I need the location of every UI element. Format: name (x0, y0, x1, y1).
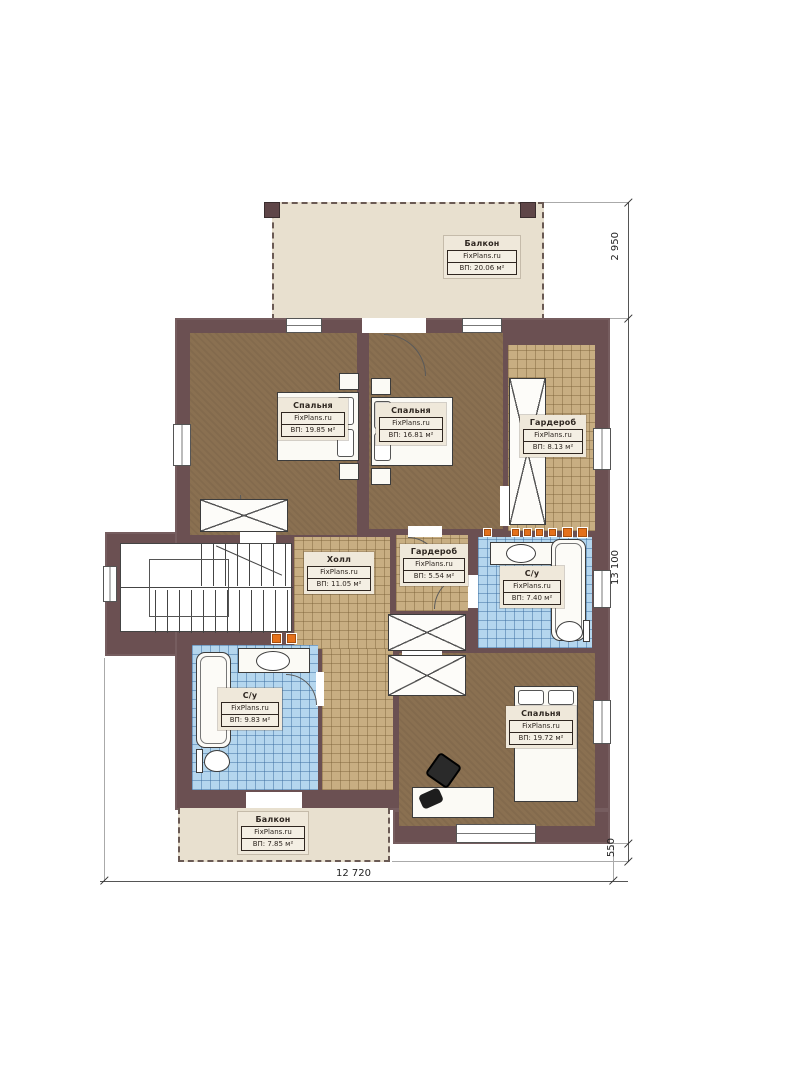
window (103, 566, 117, 602)
room-label-bathroom-right: С/у FixPlans.ru ВП: 7.40 м² (500, 566, 564, 608)
room-area: ВП: 8.13 м² (524, 441, 582, 453)
pillow (518, 690, 544, 705)
sink (506, 544, 536, 563)
room-info-box: FixPlans.ru ВП: 19.85 м² (281, 412, 345, 437)
room-name: Спальня (509, 708, 573, 719)
nightstand (371, 378, 391, 395)
sink (256, 651, 290, 671)
room-area: ВП: 9.83 м² (222, 714, 278, 726)
brand-label: FixPlans.ru (282, 413, 344, 424)
door-opening (240, 531, 276, 543)
room-label-bedroom-top-middle: Спальня FixPlans.ru ВП: 16.81 м² (376, 403, 446, 445)
room-area: ВП: 5.54 м² (404, 570, 464, 582)
room-info-box: FixPlans.ru ВП: 7.85 м² (241, 826, 305, 851)
brand-label: FixPlans.ru (380, 418, 442, 429)
room-label-balcony-bottom: Балкон FixPlans.ru ВП: 7.85 м² (238, 812, 308, 854)
room-info-box: FixPlans.ru ВП: 20.06 м² (447, 250, 517, 275)
room-name: Балкон (447, 238, 517, 249)
room-area: ВП: 16.81 м² (380, 429, 442, 441)
dimension-value-step: 550 (606, 838, 617, 857)
spot-marker (524, 529, 531, 536)
nightstand (339, 463, 359, 480)
room-info-box: FixPlans.ru ВП: 9.83 м² (221, 702, 279, 727)
window-balcony (286, 318, 322, 333)
dimension-line-right (628, 202, 629, 862)
closet (388, 655, 466, 696)
stair-void-outline (149, 559, 229, 617)
floor-hall-corridor (322, 649, 393, 790)
extension-line (104, 658, 105, 881)
window (173, 424, 191, 466)
staircase (120, 543, 292, 632)
door-opening (316, 672, 324, 706)
room-name: Спальня (379, 405, 443, 416)
spot-marker (272, 634, 281, 643)
spot-marker (287, 634, 296, 643)
door-opening (408, 526, 442, 537)
brand-label: FixPlans.ru (524, 430, 582, 441)
room-label-bedroom-bottom: Спальня FixPlans.ru ВП: 19.72 м² (506, 706, 576, 748)
balcony-post (520, 202, 536, 218)
room-name: Холл (307, 554, 371, 565)
brand-label: FixPlans.ru (504, 581, 560, 592)
extension-line (610, 318, 628, 319)
spot-marker (512, 529, 519, 536)
toilet (556, 621, 583, 642)
dimension-line-bottom (100, 881, 628, 882)
extension-line (392, 861, 628, 862)
spot-marker (578, 528, 587, 537)
room-name: Гардероб (523, 417, 583, 428)
brand-label: FixPlans.ru (308, 567, 370, 578)
window (456, 824, 536, 843)
toilet-tank (583, 620, 590, 642)
spot-marker (484, 529, 491, 536)
door-opening-balcony-bottom (246, 792, 302, 808)
room-area: ВП: 19.72 м² (510, 732, 572, 744)
room-area: ВП: 7.85 м² (242, 838, 304, 850)
spot-marker (549, 529, 556, 536)
door-opening-balcony (362, 318, 426, 333)
window (593, 700, 611, 744)
brand-label: FixPlans.ru (404, 559, 464, 570)
dimension-value-building-depth: 13 100 (610, 550, 621, 585)
room-area: ВП: 7.40 м² (504, 592, 560, 604)
room-label-bedroom-top-left: Спальня FixPlans.ru ВП: 19.85 м² (278, 398, 348, 440)
pillow (548, 690, 574, 705)
brand-label: FixPlans.ru (448, 251, 516, 262)
room-info-box: FixPlans.ru ВП: 7.40 м² (503, 580, 561, 605)
balcony-post (264, 202, 280, 218)
room-label-hall: Холл FixPlans.ru ВП: 11.05 м² (304, 552, 374, 594)
room-name: С/у (503, 568, 561, 579)
closet (200, 499, 288, 532)
room-area: ВП: 20.06 м² (448, 262, 516, 274)
room-info-box: FixPlans.ru ВП: 8.13 м² (523, 429, 583, 454)
nightstand (371, 468, 391, 485)
room-area: ВП: 19.85 м² (282, 424, 344, 436)
room-label-wardrobe-middle: Гардероб FixPlans.ru ВП: 5.54 м² (400, 544, 468, 586)
extension-line (544, 202, 628, 203)
room-name: Спальня (281, 400, 345, 411)
brand-label: FixPlans.ru (510, 721, 572, 732)
room-info-box: FixPlans.ru ВП: 5.54 м² (403, 558, 465, 583)
room-name: Гардероб (403, 546, 465, 557)
room-label-wardrobe-right: Гардероб FixPlans.ru ВП: 8.13 м² (520, 415, 586, 457)
room-info-box: FixPlans.ru ВП: 19.72 м² (509, 720, 573, 745)
room-info-box: FixPlans.ru ВП: 11.05 м² (307, 566, 371, 591)
nightstand (339, 373, 359, 390)
window (593, 570, 611, 608)
room-label-balcony-top: Балкон FixPlans.ru ВП: 20.06 м² (444, 236, 520, 278)
room-area: ВП: 11.05 м² (308, 578, 370, 590)
toilet-tank (196, 749, 203, 773)
room-name: Балкон (241, 814, 305, 825)
floor-plan: Балкон FixPlans.ru ВП: 20.06 м² Спальня … (0, 0, 792, 1080)
dimension-value-building-width: 12 720 (336, 868, 371, 879)
spot-marker (563, 528, 572, 537)
spot-marker (536, 529, 543, 536)
brand-label: FixPlans.ru (222, 703, 278, 714)
door-opening (468, 575, 478, 608)
toilet (204, 750, 230, 772)
room-label-bathroom-left: С/у FixPlans.ru ВП: 9.83 м² (218, 688, 282, 730)
window-balcony (462, 318, 502, 333)
room-name: С/у (221, 690, 279, 701)
closet (388, 614, 466, 651)
window (593, 428, 611, 470)
brand-label: FixPlans.ru (242, 827, 304, 838)
dimension-value-balcony-depth: 2 950 (610, 232, 621, 261)
room-info-box: FixPlans.ru ВП: 16.81 м² (379, 417, 443, 442)
